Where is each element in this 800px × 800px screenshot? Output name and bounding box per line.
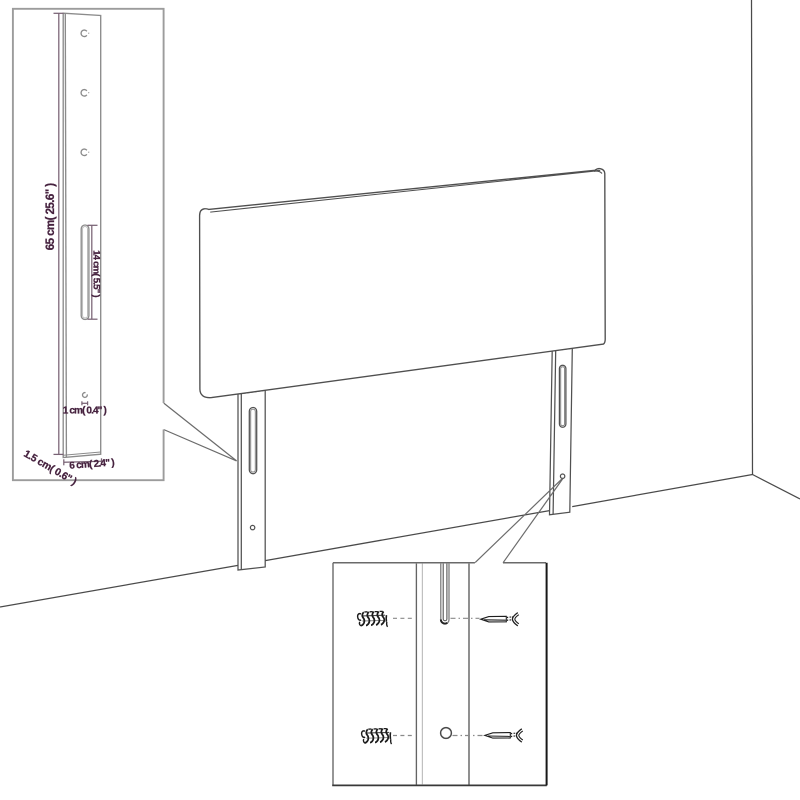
svg-text:65 cm( 25.6" ): 65 cm( 25.6" ) (45, 183, 57, 251)
svg-text:14 cm( 5.5" ): 14 cm( 5.5" ) (91, 250, 102, 297)
svg-text:1 cm( 0.4" ): 1 cm( 0.4" ) (63, 406, 107, 417)
